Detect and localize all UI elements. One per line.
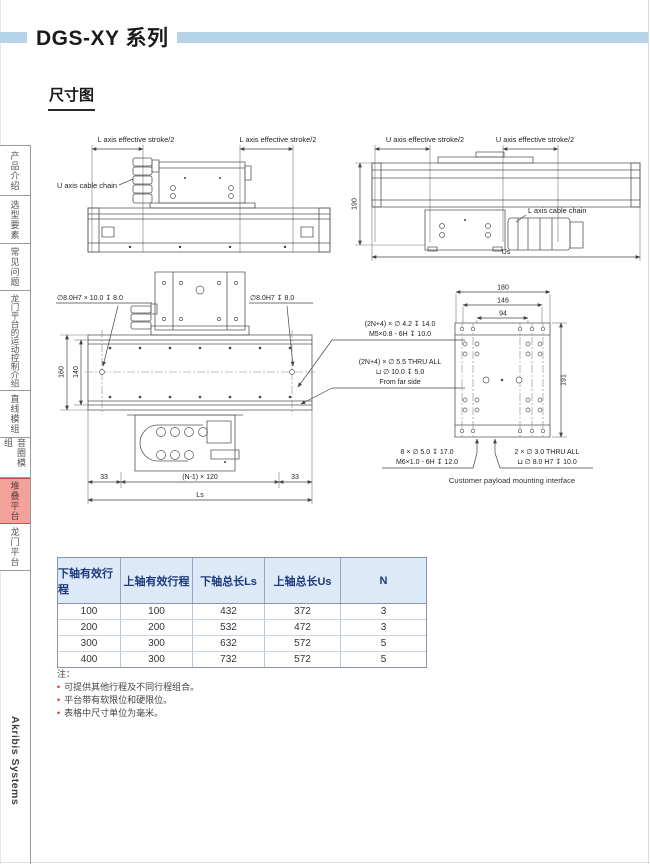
table-row: 200 200 532 472 3 — [58, 620, 426, 636]
col-lower-length: 下轴总长Ls — [193, 558, 265, 603]
payload-note-right-2: ⊔ ∅ 8.0 H7 ↧ 10.0 — [517, 459, 577, 466]
table-row: 300 300 632 572 5 — [58, 636, 426, 652]
sidebar-divider — [30, 145, 31, 864]
table-cell: 3 — [341, 604, 426, 619]
payload-caption: Customer payload mounting interface — [449, 476, 575, 485]
col-n: N — [341, 558, 426, 603]
page-title: DGS-XY 系列 — [36, 22, 168, 52]
dim-pitch: (N-1) × 120 — [182, 474, 218, 481]
payload-note-left-2: M6×1.0 - 6H ↧ 12.0 — [396, 459, 458, 466]
table-header-row: 下轴有效行程 上轴有效行程 下轴总长Ls 上轴总长Us N — [58, 558, 426, 604]
sidebar-tab-faq[interactable]: 常见问题 — [0, 244, 30, 291]
table-cell: 200 — [121, 620, 193, 635]
sidebar-tab-voicecoil[interactable]: 音圈模组 — [0, 438, 30, 478]
sidebar-tab-linear-module[interactable]: 直线模组 — [0, 391, 30, 438]
table-cell: 532 — [193, 620, 265, 635]
front-view-drawing: U axis effective stroke/2 U axis effecti… — [350, 130, 646, 270]
notes-title: 注： — [57, 668, 199, 681]
table-row: 400 300 732 572 5 — [58, 652, 426, 667]
accent-bar-right — [177, 32, 648, 43]
table-cell: 472 — [265, 620, 341, 635]
table-cell: 400 — [58, 652, 121, 667]
table-cell: 572 — [265, 652, 341, 667]
hole-note-left: ∅8.0H7 × 10.0 ↧ 8.0 — [57, 295, 123, 302]
note-text: 可提供其他行程及不同行程组合。 — [64, 682, 199, 692]
sidebar-tab-product-intro[interactable]: 产品介绍 — [0, 146, 30, 196]
table-cell: 572 — [265, 636, 341, 651]
u-stroke-label-left: U axis effective stroke/2 — [386, 135, 464, 144]
bullet-icon: • — [57, 695, 60, 705]
note-item: •平台带有软限位和硬限位。 — [57, 694, 199, 707]
dim-160: 160 — [59, 366, 66, 378]
sidebar-tab-selection[interactable]: 选型要素 — [0, 196, 30, 244]
table-cell: 5 — [341, 652, 426, 667]
note-item: •表格中尺寸单位为毫米。 — [57, 707, 199, 720]
page-bottom-edge — [0, 862, 650, 863]
table-cell: 300 — [58, 636, 121, 651]
table-row: 100 100 432 372 3 — [58, 604, 426, 620]
dim-33-left: 33 — [100, 474, 108, 481]
note-text: 平台带有软限位和硬限位。 — [64, 695, 172, 705]
table-cell: 432 — [193, 604, 265, 619]
l-axis-cable-chain-graphic — [508, 218, 583, 250]
stroke-spec-table: 下轴有效行程 上轴有效行程 下轴总长Ls 上轴总长Us N 100 100 43… — [57, 557, 427, 668]
l-stroke-label-left: L axis effective stroke/2 — [98, 135, 175, 144]
notes-block: 注： •可提供其他行程及不同行程组合。 •平台带有软限位和硬限位。 •表格中尺寸… — [57, 668, 199, 720]
payload-interface-drawing: 180 146 94 191 8 × ∅ 5.0 ↧ 17.0 M6×1.0 -… — [380, 282, 650, 490]
dim-191: 191 — [561, 374, 568, 386]
bullet-icon: • — [57, 682, 60, 692]
table-cell: 3 — [341, 620, 426, 635]
accent-bar-left — [0, 32, 27, 43]
brand-vertical-text: Akribis Systems — [9, 716, 21, 805]
bullet-icon: • — [57, 708, 60, 718]
hole-note-right: ∅8.0H7 ↧ 8.0 — [250, 295, 294, 302]
dim-33-right: 33 — [291, 474, 299, 481]
sidebar-tab-gantry-motion[interactable]: 龙门平台的运动控制介绍 — [0, 291, 30, 391]
table-cell: 372 — [265, 604, 341, 619]
table-cell: 100 — [58, 604, 121, 619]
u-stroke-label-right: U axis effective stroke/2 — [496, 135, 574, 144]
table-cell: 5 — [341, 636, 426, 651]
note-item: •可提供其他行程及不同行程组合。 — [57, 681, 199, 694]
col-upper-stroke: 上轴有效行程 — [121, 558, 193, 603]
dim-190: 190 — [352, 198, 359, 210]
section-title: 尺寸图 — [48, 84, 95, 111]
dim-ls: Ls — [196, 492, 204, 499]
table-cell: 100 — [121, 604, 193, 619]
l-stroke-label-right: L axis effective stroke/2 — [240, 135, 317, 144]
motor-cable-chain-graphic — [127, 415, 243, 471]
sidebar-tab-stacked-stage[interactable]: 堆叠平台 — [0, 478, 30, 524]
table-cell: 300 — [121, 636, 193, 651]
dim-140: 140 — [73, 366, 80, 378]
payload-note-right-1: 2 × ∅ 3.0 THRU ALL — [515, 449, 580, 456]
payload-note-left-1: 8 × ∅ 5.0 ↧ 17.0 — [400, 449, 453, 456]
u-axis-cable-chain-graphic — [133, 158, 159, 203]
table-cell: 200 — [58, 620, 121, 635]
sidebar-tabs: 产品介绍 选型要素 常见问题 龙门平台的运动控制介绍 直线模组 音圈模组 堆叠平… — [0, 145, 30, 571]
dim-180: 180 — [497, 285, 509, 292]
table-cell: 632 — [193, 636, 265, 651]
l-cable-chain-label: L axis cable chain — [528, 206, 586, 215]
u-cable-chain-label: U axis cable chain — [57, 181, 117, 190]
side-view-drawing: L axis effective stroke/2 L axis effecti… — [55, 130, 340, 258]
dim-94: 94 — [499, 311, 507, 318]
sidebar-tab-gantry-stage[interactable]: 龙门平台 — [0, 524, 30, 571]
col-lower-stroke: 下轴有效行程 — [58, 558, 121, 603]
col-upper-length: 上轴总长Us — [265, 558, 341, 603]
dim-us: Us — [502, 249, 511, 256]
table-cell: 300 — [121, 652, 193, 667]
page-header: DGS-XY 系列 — [0, 22, 648, 52]
dim-146: 146 — [497, 298, 509, 305]
note-text: 表格中尺寸单位为毫米。 — [64, 708, 163, 718]
table-cell: 732 — [193, 652, 265, 667]
